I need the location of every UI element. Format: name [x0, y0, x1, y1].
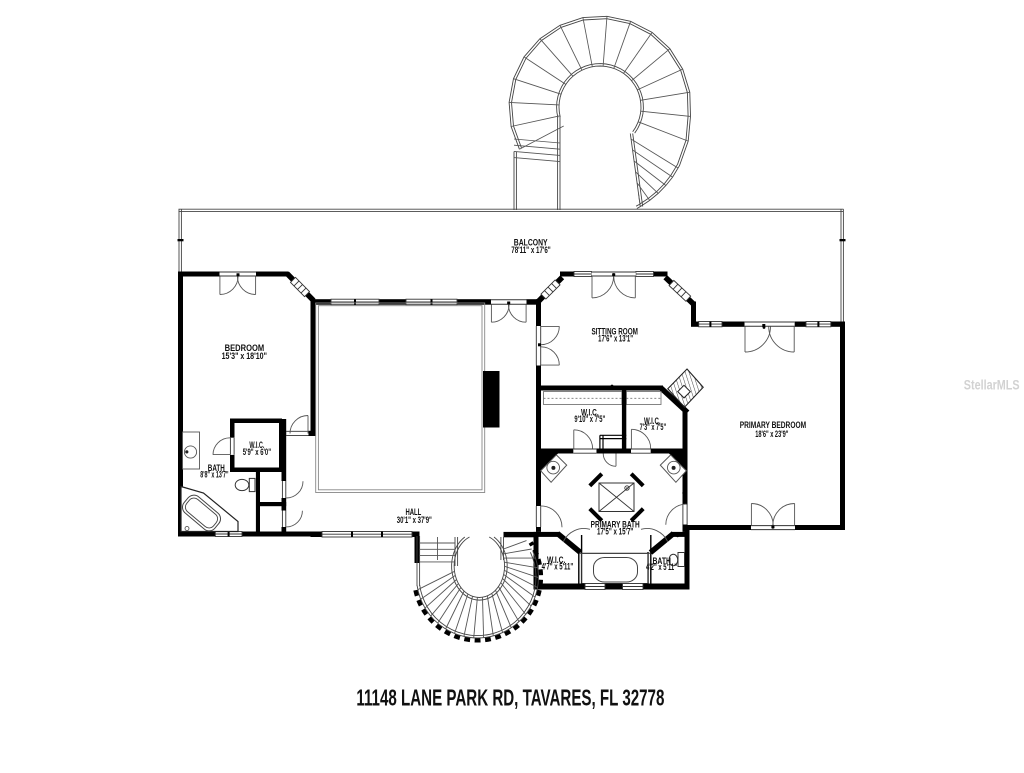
svg-text:17'6" x 13'1": 17'6" x 13'1"	[598, 333, 633, 343]
svg-text:78'11" x 17'6": 78'11" x 17'6"	[511, 245, 551, 255]
svg-text:4'2" x 5'11": 4'2" x 5'11"	[646, 562, 677, 572]
svg-text:9'10" x 7'5": 9'10" x 7'5"	[574, 414, 605, 424]
svg-text:18'6" x 23'9": 18'6" x 23'9"	[755, 429, 788, 439]
svg-text:StellarMLS: StellarMLS	[964, 377, 1020, 393]
svg-text:7'3" x 7'5": 7'3" x 7'5"	[640, 422, 667, 432]
svg-text:17'5" x 15'7": 17'5" x 15'7"	[597, 527, 633, 537]
svg-text:30'1" x 37'9": 30'1" x 37'9"	[397, 515, 432, 525]
svg-text:4'7" x 5'11": 4'7" x 5'11"	[542, 562, 574, 572]
svg-text:11148 LANE PARK RD, TAVARES, F: 11148 LANE PARK RD, TAVARES, FL 32778	[356, 685, 664, 711]
svg-text:5'9" x 6'0": 5'9" x 6'0"	[243, 447, 271, 457]
svg-text:8'8" x 13'7": 8'8" x 13'7"	[200, 469, 228, 479]
svg-text:15'3" x 18'10": 15'3" x 18'10"	[222, 351, 267, 361]
